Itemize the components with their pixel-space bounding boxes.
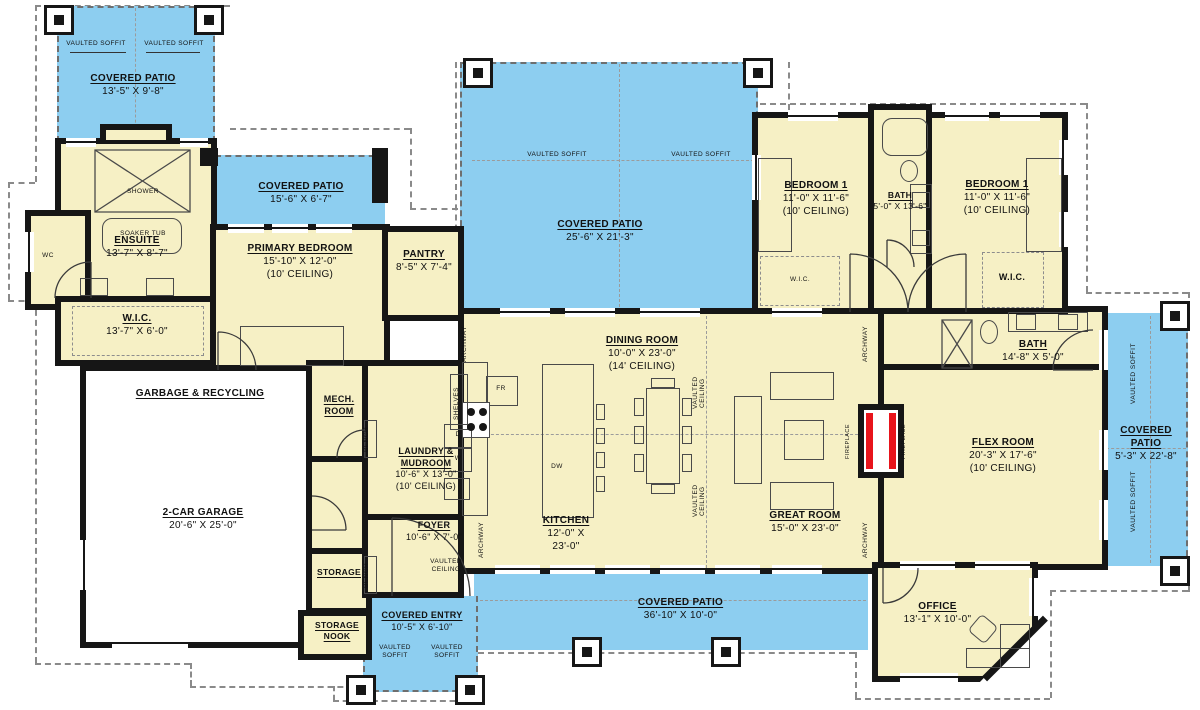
note-w: W xyxy=(449,455,467,463)
window xyxy=(1099,430,1108,470)
note-vaulted-soffit: VAULTED SOFFIT xyxy=(668,151,734,159)
patio-guide xyxy=(619,64,620,312)
room-title: KITCHEN xyxy=(534,514,598,527)
note-bench: BENCH xyxy=(363,421,370,457)
room-title: BATH xyxy=(872,190,928,201)
room-label-wic-left: W.I.C. xyxy=(778,276,822,284)
roof-dash xyxy=(230,128,410,130)
note-archway: ARCHWAY xyxy=(862,520,869,560)
room-label-storage: STORAGE xyxy=(309,567,369,578)
room-dims: 15'-6" X 6'-7" xyxy=(227,193,375,206)
dining-chair xyxy=(634,454,644,472)
roof-dash xyxy=(333,686,335,700)
roof-dash xyxy=(1086,103,1088,292)
room-label-storage-nook: STORAGE NOOK xyxy=(306,620,368,642)
room-dims: 36'-10" X 10'-0" xyxy=(598,609,763,622)
room-label-flex-room: FLEX ROOM 20'-3" X 17'-6" (10' CEILING) xyxy=(948,436,1058,475)
window xyxy=(500,308,550,317)
room-dims: 10'-6" X 13'-0" xyxy=(374,469,478,481)
room-title: COVERED PATIO xyxy=(58,72,208,85)
roof-dash xyxy=(1050,590,1052,698)
room-label-great-room: GREAT ROOM 15'-0" X 23'-0" xyxy=(750,509,860,535)
note-archway: ARCHWAY xyxy=(478,520,485,560)
room-label-office: OFFICE 13'-1" X 10'-0" xyxy=(890,600,985,626)
room-label-bedroom1-right: BEDROOM 1 11'-0" X 11'-6" (10' CEILING) xyxy=(936,178,1058,217)
vanity-sink xyxy=(1058,314,1078,330)
room-title: DINING ROOM xyxy=(592,334,692,347)
window xyxy=(565,308,615,317)
note-vaulted-ceiling: VAULTED CEILING xyxy=(692,364,706,422)
note-vaulted-ceiling: VAULTED CEILING xyxy=(692,472,706,530)
room-dims: 11'-0" X 11'-6" xyxy=(936,191,1058,204)
dining-chair xyxy=(651,378,675,388)
window xyxy=(605,565,650,574)
note-vaulted-ceiling: VAULTED CEILING xyxy=(418,558,474,575)
dining-chair xyxy=(682,426,692,444)
toilet xyxy=(900,160,918,182)
soffit-line xyxy=(70,52,126,53)
note-shower: SHOWER xyxy=(108,188,178,196)
room-title: BEDROOM 1 xyxy=(766,179,866,192)
room-dims: 14'-8" X 5'-0" xyxy=(988,351,1078,364)
room-ceiling: (10' CEILING) xyxy=(936,204,1058,217)
dining-chair xyxy=(682,454,692,472)
column-post xyxy=(346,675,376,705)
room-label-kitchen: KITCHEN 12'-0" X 23'-0" xyxy=(534,514,598,553)
dining-chair xyxy=(651,484,675,494)
vaulted-ceiling-line xyxy=(706,316,707,568)
window xyxy=(975,561,1030,570)
sofa xyxy=(770,482,834,510)
note-fr: FR xyxy=(492,385,510,393)
room-label-pantry: PANTRY 8'-5" X 7'-4" xyxy=(388,248,460,274)
room-title: COVERED PATIO xyxy=(530,218,670,231)
window xyxy=(1099,330,1108,370)
vanity-sink xyxy=(912,230,930,246)
note-vaulted-soffit: VAULTED SOFFIT xyxy=(1130,470,1137,534)
coffee-table xyxy=(784,420,824,460)
room-label-covered-patio-right: COVERED PATIO 5'-3" X 22'-8" xyxy=(1108,424,1184,463)
window xyxy=(25,232,34,272)
room-label-primary-bedroom: PRIMARY BEDROOM 15'-10" X 12'-0" (10' CE… xyxy=(244,242,356,281)
column-post xyxy=(1160,556,1190,586)
roof-dash xyxy=(8,182,35,184)
roof-dash xyxy=(1086,292,1188,294)
note-d: D xyxy=(449,431,467,439)
roof-dash xyxy=(8,182,10,300)
room-title: COVERED PATIO xyxy=(227,180,375,193)
room-dims: 13'-1" X 10'-0" xyxy=(890,613,985,626)
note-soaker-tub: SOAKER TUB xyxy=(102,230,184,238)
note-vaulted-soffit: VAULTED SOFFIT xyxy=(1130,342,1137,406)
room-dims: 10'-5" X 6'-10" xyxy=(370,622,474,634)
room-title: 2-CAR GARAGE xyxy=(138,506,268,519)
roof-dash xyxy=(1050,590,1188,592)
kitchen-island xyxy=(542,364,594,518)
room-dims: 15'-0" X 23'-0" xyxy=(750,522,860,535)
roof-dash xyxy=(190,663,192,686)
window xyxy=(900,561,955,570)
room-label-covered-patio-center: COVERED PATIO 25'-6" X 21'-3" xyxy=(530,218,670,244)
room-ceiling: (10' CEILING) xyxy=(244,268,356,281)
room-dims: 8'-5" X 7'-4" xyxy=(388,261,460,274)
column-post xyxy=(44,5,74,35)
fireplace-firebox-left xyxy=(866,413,873,469)
roof-dash xyxy=(410,208,458,210)
room-dims: 10'-6" X 7'-0" xyxy=(398,532,470,544)
room-title: GREAT ROOM xyxy=(750,509,860,522)
room-label-covered-patio-tl: COVERED PATIO 13'-5" X 9'-8" xyxy=(58,72,208,98)
note-archway: ARCHWAY xyxy=(862,324,869,364)
room-label-garage: 2-CAR GARAGE 20'-6" X 25'-0" xyxy=(138,506,268,532)
room-label-foyer: FOYER 10'-6" X 7'-0" xyxy=(398,520,470,543)
window xyxy=(1099,500,1108,540)
vanity-sink xyxy=(1016,314,1036,330)
room-title: COVERED PATIO xyxy=(598,596,763,609)
room-title: FOYER xyxy=(398,520,470,532)
room-label-bedroom1-left: BEDROOM 1 11'-0" X 11'-6" (10' CEILING) xyxy=(766,179,866,218)
shower-niche-inner xyxy=(106,130,166,140)
room-dims: 13'-7" X 6'-0" xyxy=(67,325,207,338)
note-vaulted-soffit: VAULTED SOFFIT xyxy=(142,40,206,48)
window xyxy=(945,112,989,121)
room-title: STORAGE xyxy=(309,567,369,578)
note-vaulted-soffit: VAULTED SOFFIT xyxy=(424,644,470,661)
window xyxy=(66,138,96,147)
column-post xyxy=(463,58,493,88)
note-vaulted-soffit: VAULTED SOFFIT xyxy=(524,151,590,159)
room-title: STORAGE NOOK xyxy=(306,620,368,642)
note-bench: BENCH xyxy=(363,557,370,593)
room-label-bath-flex: BATH 14'-8" X 5'-0" xyxy=(988,338,1078,364)
window xyxy=(772,565,822,574)
room-title: BATH xyxy=(988,338,1078,351)
patio-guide xyxy=(472,160,754,161)
island-stool xyxy=(596,428,605,444)
window xyxy=(772,308,822,317)
room-title: PRIMARY BEDROOM xyxy=(244,242,356,255)
soffit-line xyxy=(146,52,200,53)
sofa xyxy=(770,372,834,400)
room-label-covered-patio-bottom: COVERED PATIO 36'-10" X 10'-0" xyxy=(598,596,763,622)
roof-dash xyxy=(35,300,37,663)
note-archway: ARCHWAY xyxy=(461,324,468,364)
dining-chair xyxy=(634,426,644,444)
window xyxy=(180,138,208,147)
label-garbage-recycling: GARBAGE & RECYCLING xyxy=(120,387,280,400)
fireplace-firebox-right xyxy=(889,413,896,469)
garage-door xyxy=(112,639,188,648)
couch xyxy=(734,396,762,484)
note-fireplace: FIREPLACE xyxy=(845,411,851,471)
column-post xyxy=(455,675,485,705)
room-ceiling: (10' CEILING) xyxy=(766,205,866,218)
note-wc: WC xyxy=(36,252,60,260)
note-shelves: SHELVES xyxy=(453,380,460,426)
window xyxy=(640,308,700,317)
room-dims: 20'-3" X 17'-6" xyxy=(948,449,1058,462)
room-title: OFFICE xyxy=(890,600,985,613)
room-title: PANTRY xyxy=(388,248,460,261)
window xyxy=(788,112,838,121)
covered-patio-center xyxy=(460,62,758,315)
room-dims: 20'-6" X 25'-0" xyxy=(138,519,268,532)
room-dims: 5'-0" X 13'-6" xyxy=(872,201,928,212)
vanity-sink xyxy=(80,278,108,296)
note-vaulted-soffit: VAULTED SOFFIT xyxy=(64,40,128,48)
roof-dash xyxy=(35,663,190,665)
room-title: W.I.C. xyxy=(986,272,1038,284)
column-post xyxy=(711,637,741,667)
room-ceiling: (10' CEILING) xyxy=(374,481,478,493)
vanity-sink xyxy=(146,278,174,296)
column-post xyxy=(194,5,224,35)
room-label-laundry: LAUNDRY & MUDROOM 10'-6" X 13'-0" (10' C… xyxy=(374,446,478,493)
window xyxy=(1029,578,1038,616)
room-label-wic-primary: W.I.C. 13'-7" X 6'-0" xyxy=(67,312,207,338)
dining-chair xyxy=(682,398,692,416)
window xyxy=(495,565,540,574)
room-dims: 12'-0" X 23'-0" xyxy=(534,527,598,553)
room-dims: 13'-7" X 8'-7" xyxy=(72,247,202,260)
room-label-wic-right: W.I.C. xyxy=(986,272,1038,284)
roof-dash xyxy=(478,652,855,654)
room-title: GARBAGE & RECYCLING xyxy=(120,387,280,400)
island-stool xyxy=(596,404,605,420)
dining-chair xyxy=(634,398,644,416)
wall-stub xyxy=(200,148,218,166)
window xyxy=(900,673,958,682)
note-dw: DW xyxy=(546,463,568,471)
bathtub xyxy=(882,118,928,156)
room-dims: 13'-5" X 9'-8" xyxy=(58,85,208,98)
roof-dash xyxy=(190,686,363,688)
room-dims: 5'-3" X 22'-8" xyxy=(1108,450,1184,463)
column-post xyxy=(1160,301,1190,331)
roof-dash xyxy=(410,128,412,208)
room-dims: 11'-0" X 11'-6" xyxy=(766,192,866,205)
roof-dash xyxy=(35,5,37,182)
window xyxy=(660,565,705,574)
roof-dash xyxy=(855,698,1050,700)
room-label-mech: MECH. ROOM xyxy=(312,394,366,417)
window xyxy=(715,565,760,574)
room-title: MECH. ROOM xyxy=(312,394,366,417)
room-dims: 10'-0" X 23'-0" xyxy=(592,347,692,360)
room-title: BEDROOM 1 xyxy=(936,178,1058,191)
island-stool xyxy=(596,476,605,492)
note-vaulted-soffit: VAULTED SOFFIT xyxy=(372,644,418,661)
note-fireplace: FIREPLACE xyxy=(901,411,907,471)
window xyxy=(550,565,595,574)
room-dims: 15'-10" X 12'-0" xyxy=(244,255,356,268)
room-ceiling: (10' CEILING) xyxy=(948,462,1058,475)
room-ceiling: (14' CEILING) xyxy=(592,360,692,373)
window xyxy=(316,224,352,233)
column-post xyxy=(743,58,773,88)
window xyxy=(1000,112,1040,121)
floor-plan: COVERED PATIO 13'-5" X 9'-8" VAULTED SOF… xyxy=(0,0,1200,710)
window xyxy=(228,224,264,233)
room-title: FLEX ROOM xyxy=(948,436,1058,449)
room-label-bath-hall: BATH 5'-0" X 13'-6" xyxy=(872,190,928,212)
room-title: COVERED ENTRY xyxy=(370,610,474,622)
window xyxy=(272,224,308,233)
dining-table xyxy=(646,388,680,484)
room-label-dining: DINING ROOM 10'-0" X 23'-0" (14' CEILING… xyxy=(592,334,692,373)
primary-bed xyxy=(240,326,344,366)
roof-dash xyxy=(855,652,857,698)
column-post xyxy=(572,637,602,667)
island-stool xyxy=(596,452,605,468)
room-dims: 25'-6" X 21'-3" xyxy=(530,231,670,244)
room-title: COVERED PATIO xyxy=(1108,424,1184,450)
room-title: W.I.C. xyxy=(67,312,207,325)
room-label-covered-entry: COVERED ENTRY 10'-5" X 6'-10" xyxy=(370,610,474,633)
room-label-covered-patio-left: COVERED PATIO 15'-6" X 6'-7" xyxy=(227,180,375,206)
office-desk xyxy=(966,648,1030,668)
garage-side-window xyxy=(80,540,89,590)
